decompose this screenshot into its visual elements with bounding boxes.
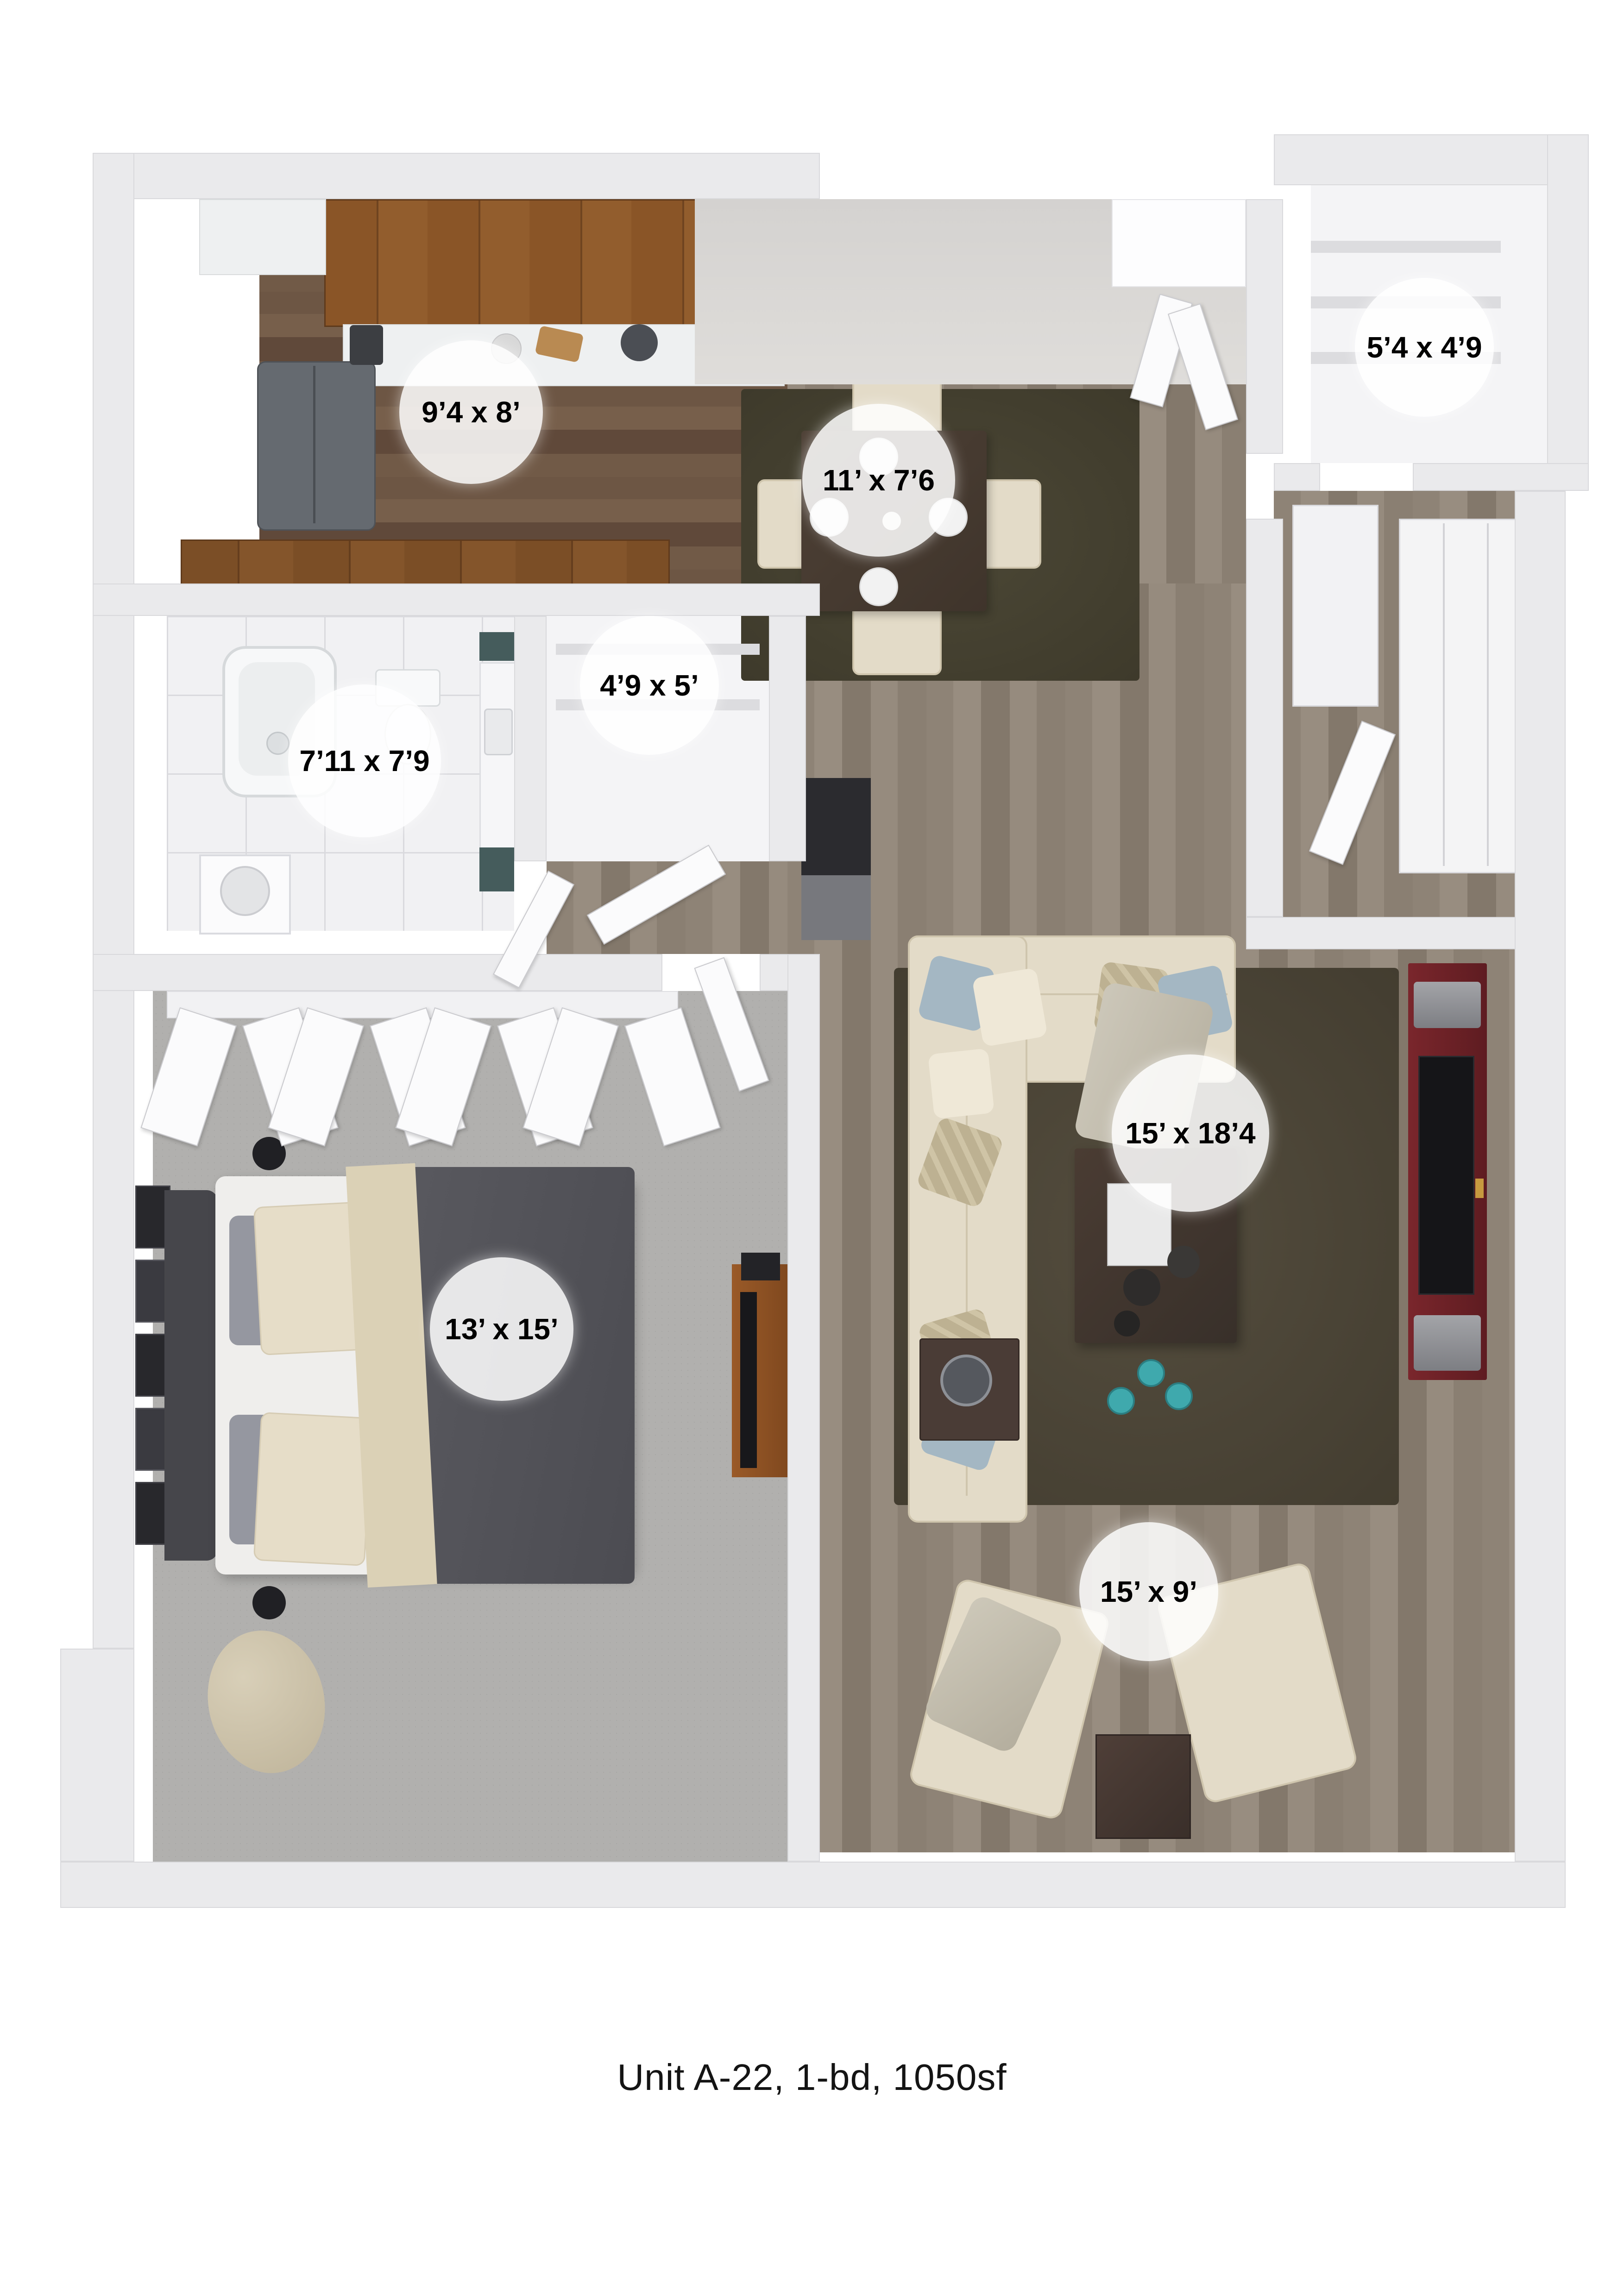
vanity-sink [484, 709, 513, 755]
label-living-room: 15’ x 18’4 [1112, 1054, 1269, 1212]
label-kitchen-text: 9’4 x 8’ [422, 395, 521, 429]
bedroom-media-box [741, 1253, 780, 1280]
bedside-lamp [252, 1586, 286, 1619]
label-dining: 11’ x 7’6 [802, 404, 955, 557]
bedroom-tv [740, 1292, 757, 1468]
entry-closet-shelf [1311, 241, 1501, 253]
wall-kitchen-top [130, 153, 820, 199]
wall-right [1515, 491, 1566, 1862]
wall-bedroom-top-a [93, 954, 662, 991]
sofa-pillow-cream [928, 1048, 995, 1119]
wardrobe-door-seam [1487, 523, 1489, 866]
label-entry-closet: 5’4 x 4’9 [1355, 278, 1494, 417]
label-bathroom-text: 7’11 x 7’9 [299, 744, 429, 778]
den-side-table [1095, 1734, 1191, 1839]
vanity-counter [479, 662, 517, 850]
label-kitchen: 9’4 x 8’ [399, 340, 543, 484]
label-hall-closet-text: 4’9 x 5’ [600, 668, 699, 703]
kettle [621, 324, 658, 361]
wall-entry-left-2 [1246, 519, 1283, 917]
wall-left [93, 153, 134, 1649]
soundbar-bottom [1414, 1315, 1481, 1371]
wall-bath-right [514, 616, 547, 861]
soundbar-top [1414, 982, 1481, 1028]
dining-chair-bottom [852, 604, 942, 675]
label-den: 15’ x 9’ [1079, 1522, 1218, 1661]
label-bedroom-text: 13’ x 15’ [445, 1312, 559, 1346]
coffee-maker [350, 325, 383, 365]
label-entry-closet-text: 5’4 x 4’9 [1366, 330, 1482, 364]
bed-headboard [164, 1190, 218, 1561]
tv-screen [1418, 1056, 1474, 1295]
teacup [1107, 1387, 1135, 1415]
wall-bottom [60, 1862, 1566, 1908]
bed-pillow-cream [253, 1412, 372, 1566]
label-hall-closet: 4’9 x 5’ [580, 616, 719, 755]
kitchen-bottom-cabinets [181, 539, 670, 589]
wardrobe-door-seam [1443, 523, 1445, 866]
shower-tile-accent [479, 847, 514, 891]
label-living-room-text: 15’ x 18’4 [1125, 1116, 1255, 1150]
plate [859, 567, 898, 606]
refrigerator [257, 361, 376, 531]
wall-entry-left [1246, 199, 1283, 454]
sofa-pillow-cream [972, 967, 1048, 1047]
kitchen-left-counter [199, 199, 326, 275]
entry-cabinet [1292, 505, 1379, 707]
wall-entry-bottom-a [1274, 463, 1320, 491]
decor-bowl [1167, 1246, 1200, 1278]
wall-left-lower [60, 1649, 134, 1862]
wall-bedroom-right [787, 954, 820, 1862]
unit-caption: Unit A-22, 1-bd, 1050sf [0, 2056, 1624, 2099]
decor-bowl [1123, 1269, 1160, 1306]
wall-entry-bottom-b [1413, 463, 1589, 491]
entry-door-opening [1112, 199, 1246, 287]
shower-tile-accent [479, 632, 514, 661]
wall-hall-closet-right [769, 616, 806, 861]
wall-entry-right [1547, 134, 1589, 491]
dining-chair-right [980, 479, 1041, 569]
console-cabinet-gray [801, 875, 871, 940]
media-accent [1475, 1179, 1484, 1198]
refrigerator-seam [313, 366, 315, 523]
label-dining-text: 11’ x 7’6 [823, 463, 935, 497]
label-bedroom: 13’ x 15’ [430, 1257, 573, 1401]
wall-entry-top [1274, 134, 1589, 185]
bathtub-drain [266, 732, 290, 755]
kettle-on-side-table [940, 1355, 992, 1406]
decor-bowl [1114, 1311, 1140, 1336]
washer-drum [220, 866, 270, 916]
teacup [1165, 1382, 1193, 1410]
label-den-text: 15’ x 9’ [1100, 1575, 1197, 1609]
teacup [1137, 1359, 1165, 1387]
console-cabinet-dark [801, 778, 871, 875]
wall-kitchen-bath [93, 583, 820, 616]
label-bathroom: 7’11 x 7’9 [288, 684, 441, 837]
floor-plan-page: 9’4 x 8’ 11’ x 7’6 5’4 x 4’9 4’9 x 5’ 7’… [0, 0, 1624, 2296]
